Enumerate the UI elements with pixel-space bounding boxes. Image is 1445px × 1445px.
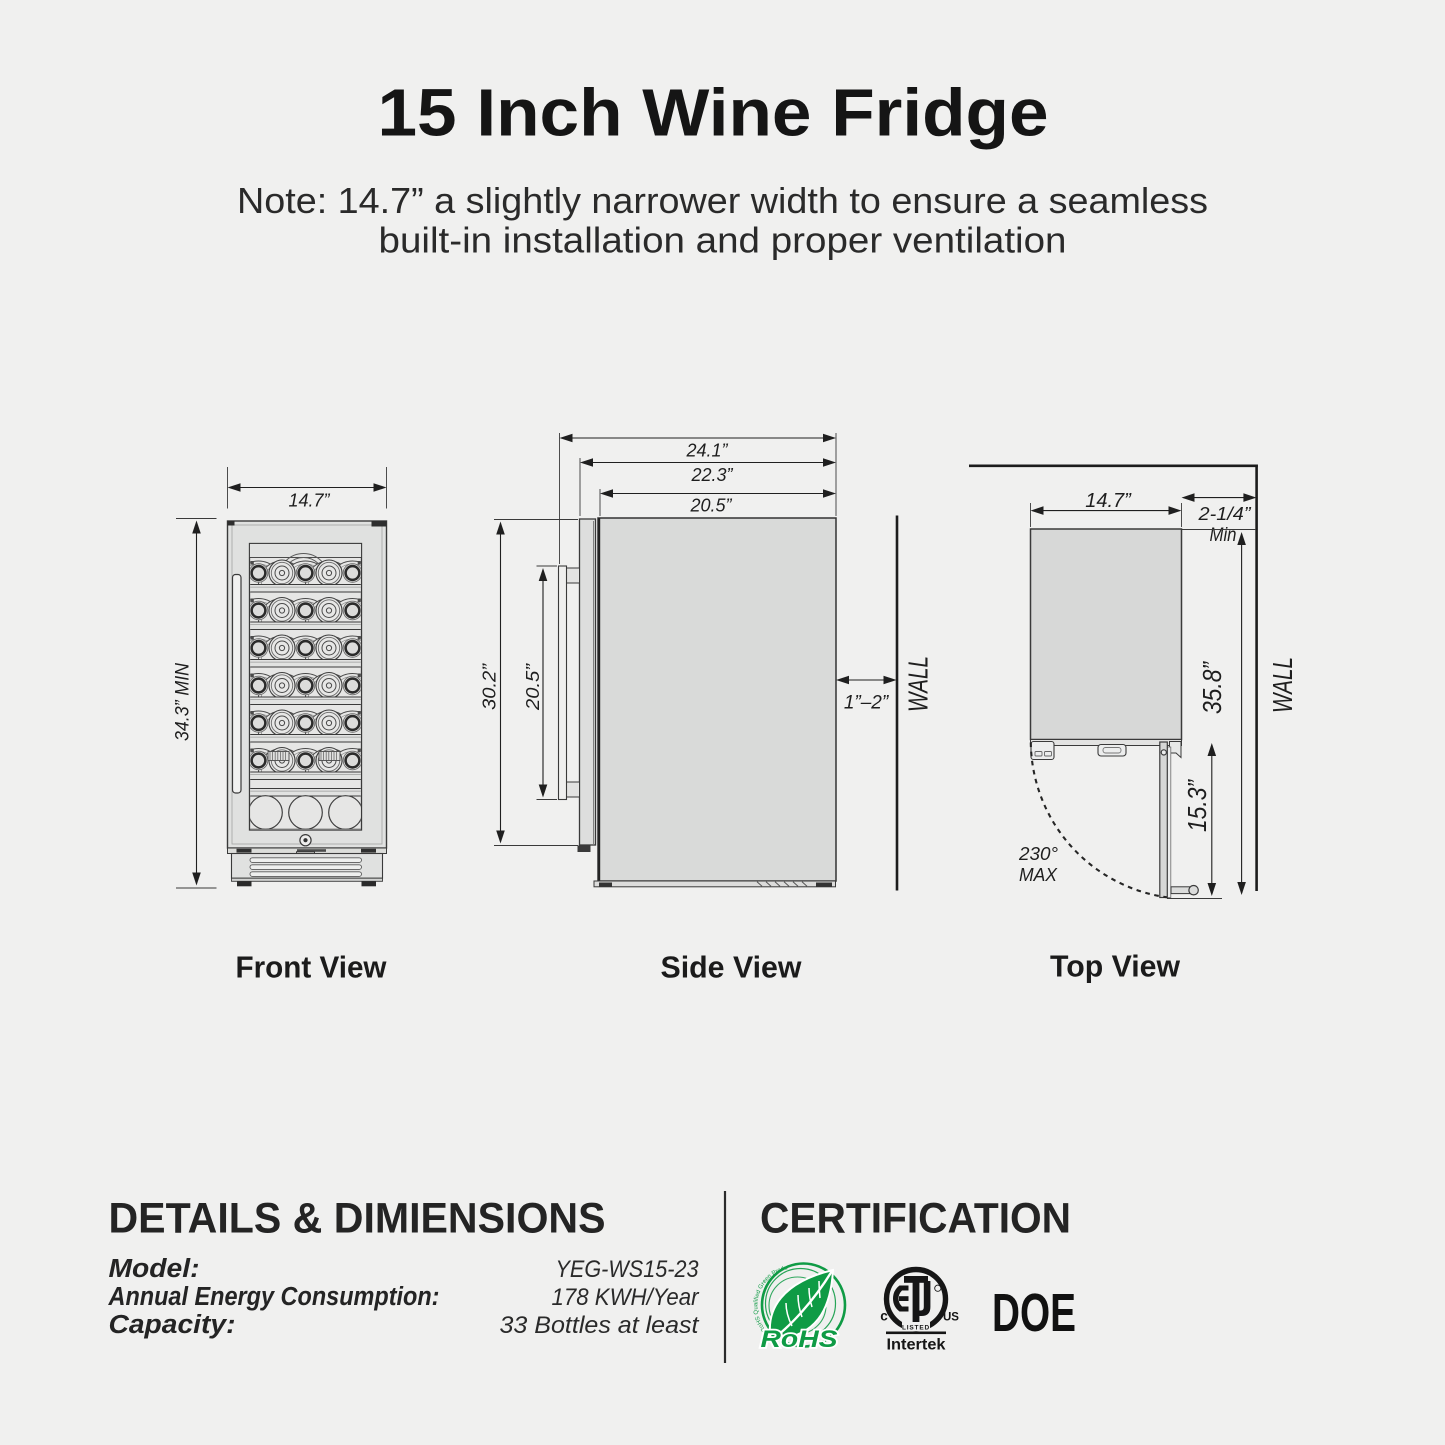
svg-text:1”–2”: 1”–2” [844,693,890,714]
svg-text:230°: 230° [1018,844,1058,864]
svg-text:built-in installation and prop: built-in installation and proper ventila… [379,220,1067,261]
svg-text:WALL: WALL [903,656,934,712]
svg-text:24.1”: 24.1” [685,441,728,461]
svg-text:Note: 14.7” a slightly narrowe: Note: 14.7” a slightly narrower width to… [237,180,1208,221]
svg-text:Capacity:: Capacity: [109,1311,236,1339]
svg-text:178 KWH/Year: 178 KWH/Year [552,1284,700,1311]
svg-text:15.3”: 15.3” [1182,779,1212,832]
svg-text:Model:: Model: [109,1255,200,1283]
svg-text:c: c [880,1309,888,1324]
svg-text:14.7”: 14.7” [1085,490,1132,512]
svg-text:Side View: Side View [661,950,803,985]
svg-text:Top View: Top View [1050,949,1181,984]
svg-text:US: US [943,1312,959,1324]
svg-text:35.8”: 35.8” [1197,661,1227,714]
svg-text:LISTED: LISTED [902,1325,930,1332]
svg-text:Annual Energy Consumption:: Annual Energy Consumption: [108,1283,440,1311]
svg-text:2-1/4”: 2-1/4” [1197,504,1251,524]
svg-text:RoHS: RoHS [761,1326,838,1353]
svg-text:WALL: WALL [1267,657,1298,713]
svg-text:CERTIFICATION: CERTIFICATION [760,1195,1071,1243]
svg-text:MAX: MAX [1019,865,1058,885]
svg-text:Min: Min [1210,525,1237,546]
svg-text:Front View: Front View [236,950,388,985]
svg-text:30.2”: 30.2” [480,663,500,710]
svg-text:20.5”: 20.5” [689,496,732,516]
svg-text:DOE: DOE [992,1283,1076,1343]
svg-text:DETAILS & DIMIENSIONS: DETAILS & DIMIENSIONS [109,1195,606,1243]
svg-text:34.3” MIN: 34.3” MIN [173,663,194,741]
svg-text:15 Inch Wine Fridge: 15 Inch Wine Fridge [378,77,1049,151]
svg-text:Intertek: Intertek [887,1337,946,1354]
svg-text:14.7”: 14.7” [288,491,330,511]
svg-text:22.3”: 22.3” [690,465,733,485]
svg-text:20.5”: 20.5” [523,663,543,711]
svg-text:YEG-WS15-23: YEG-WS15-23 [556,1256,700,1283]
svg-text:33 Bottles at least: 33 Bottles at least [500,1312,700,1339]
